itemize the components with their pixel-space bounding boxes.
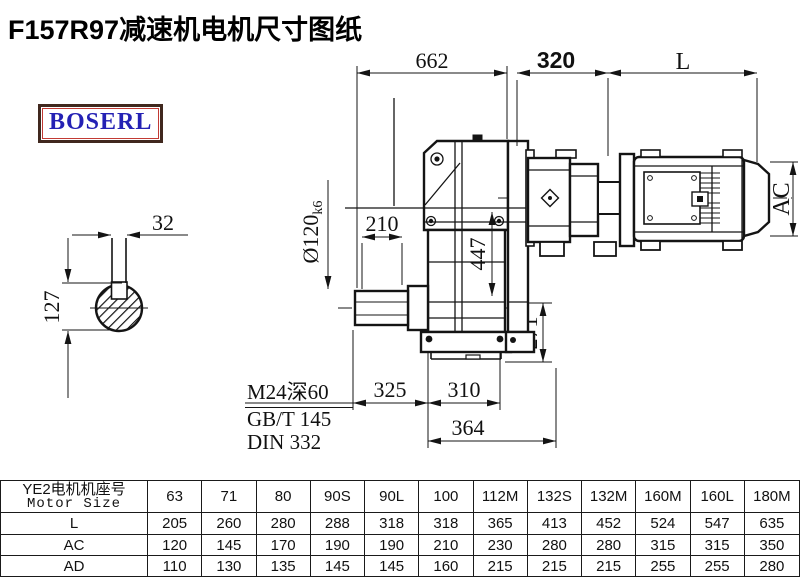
cell-AC: 170 xyxy=(257,535,311,556)
cell-AD: 280 xyxy=(745,556,799,576)
row-label-L: L xyxy=(1,513,148,535)
cell-AD: 215 xyxy=(582,556,636,576)
dim-base-width-label: 364 xyxy=(452,415,485,440)
mounting-foot xyxy=(421,332,511,352)
cell-AC: 210 xyxy=(419,535,473,556)
cell-AC: 120 xyxy=(148,535,202,556)
oil-plug xyxy=(473,135,482,141)
column-header: 80 xyxy=(257,481,311,513)
cell-AD: 110 xyxy=(148,556,202,576)
cell-AD: 160 xyxy=(419,556,473,576)
cell-AD: 215 xyxy=(528,556,582,576)
cell-L: 318 xyxy=(365,513,419,535)
cell-L: 452 xyxy=(582,513,636,535)
cell-AC: 280 xyxy=(582,535,636,556)
cell-L: 288 xyxy=(311,513,365,535)
cell-L: 280 xyxy=(257,513,311,535)
dim-motor-length-label: L xyxy=(676,49,691,75)
cell-AD: 215 xyxy=(474,556,528,576)
cell-L: 547 xyxy=(691,513,745,535)
column-header: 160L xyxy=(691,481,745,513)
cell-AC: 350 xyxy=(745,535,799,556)
cell-L: 524 xyxy=(636,513,690,535)
column-header: 63 xyxy=(148,481,202,513)
cell-AD: 130 xyxy=(202,556,256,576)
dim-foot-width-label: 310 xyxy=(448,377,481,402)
dim-shaft-extension-label: 325 xyxy=(374,377,407,402)
column-header: 160M xyxy=(636,481,690,513)
note-tapped-hole: M24深60 xyxy=(247,380,329,404)
cell-L: 318 xyxy=(419,513,473,535)
row-label-AC: AC xyxy=(1,535,148,556)
dim-motor-offset-label: 320 xyxy=(537,47,575,73)
cell-AC: 315 xyxy=(691,535,745,556)
cell-L: 413 xyxy=(528,513,582,535)
gearbox-front-view xyxy=(338,98,512,359)
dim-key-width-label: 32 xyxy=(152,210,174,235)
column-header: 90S xyxy=(311,481,365,513)
column-header: 71 xyxy=(202,481,256,513)
cell-AC: 315 xyxy=(636,535,690,556)
cell-L: 260 xyxy=(202,513,256,535)
cell-AD: 135 xyxy=(257,556,311,576)
note-standard-din: DIN 332 xyxy=(247,430,321,454)
note-standard-gbt: GB/T 145 xyxy=(247,407,331,431)
dim-shaft-diameter-label: Ø120k6 xyxy=(298,201,326,264)
shaft-end-view xyxy=(62,235,188,398)
row-label-AD: AD xyxy=(1,556,148,576)
cell-AD: 255 xyxy=(691,556,745,576)
motor-size-table: YE2电机机座号 Motor Size 63 71 80 90S 90L 100… xyxy=(0,480,800,577)
column-header: 100 xyxy=(419,481,473,513)
dim-shaft-height-label: 127 xyxy=(39,291,64,324)
column-header: 132S xyxy=(528,481,582,513)
dim-center-height-label: 447 xyxy=(465,238,490,271)
output-shaft xyxy=(355,286,428,330)
cell-AC: 190 xyxy=(365,535,419,556)
column-header: 132M xyxy=(582,481,636,513)
drawing-page: F157R97减速机电机尺寸图纸 BOSERL xyxy=(0,0,800,579)
dim-motor-diameter-label: AC xyxy=(769,182,795,215)
technical-drawing: 32 127 xyxy=(0,0,800,479)
cell-AD: 145 xyxy=(311,556,365,576)
column-header: 90L xyxy=(365,481,419,513)
cell-L: 205 xyxy=(148,513,202,535)
column-header: 180M xyxy=(745,481,799,513)
motor-side-view xyxy=(498,141,792,352)
table-header-motor-size: YE2电机机座号 Motor Size xyxy=(1,481,148,513)
cell-AC: 280 xyxy=(528,535,582,556)
cell-AC: 190 xyxy=(311,535,365,556)
cell-L: 365 xyxy=(474,513,528,535)
column-header: 112M xyxy=(474,481,528,513)
cell-AC: 145 xyxy=(202,535,256,556)
cell-AC: 230 xyxy=(474,535,528,556)
cell-AD: 255 xyxy=(636,556,690,576)
cell-L: 635 xyxy=(745,513,799,535)
dim-overall-width-label: 662 xyxy=(416,48,449,73)
fan-cover xyxy=(744,160,769,236)
keyway-slot xyxy=(112,282,128,299)
cell-AD: 145 xyxy=(365,556,419,576)
dim-shoulder-label: 210 xyxy=(366,211,399,236)
